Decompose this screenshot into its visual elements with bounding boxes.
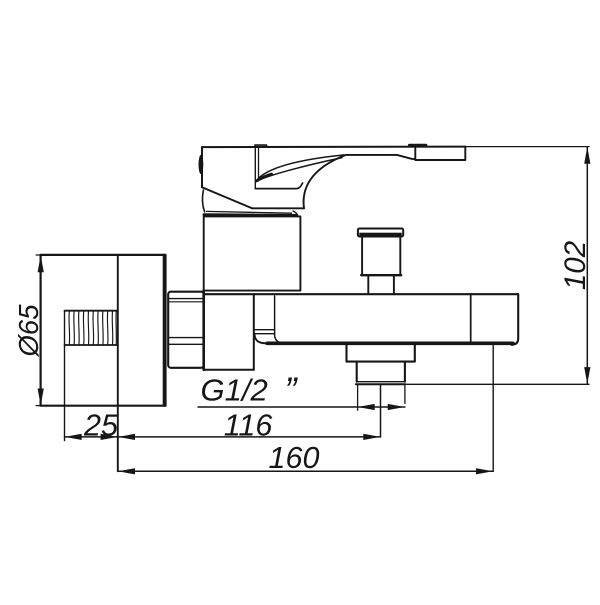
svg-text:116: 116 [224, 408, 273, 442]
svg-text:160: 160 [269, 441, 320, 475]
svg-text:25: 25 [83, 408, 119, 442]
svg-text:”: ” [285, 370, 299, 411]
svg-text:Ø65: Ø65 [13, 304, 44, 358]
svg-text:102: 102 [559, 241, 592, 290]
svg-text:G1/2: G1/2 [201, 373, 268, 408]
